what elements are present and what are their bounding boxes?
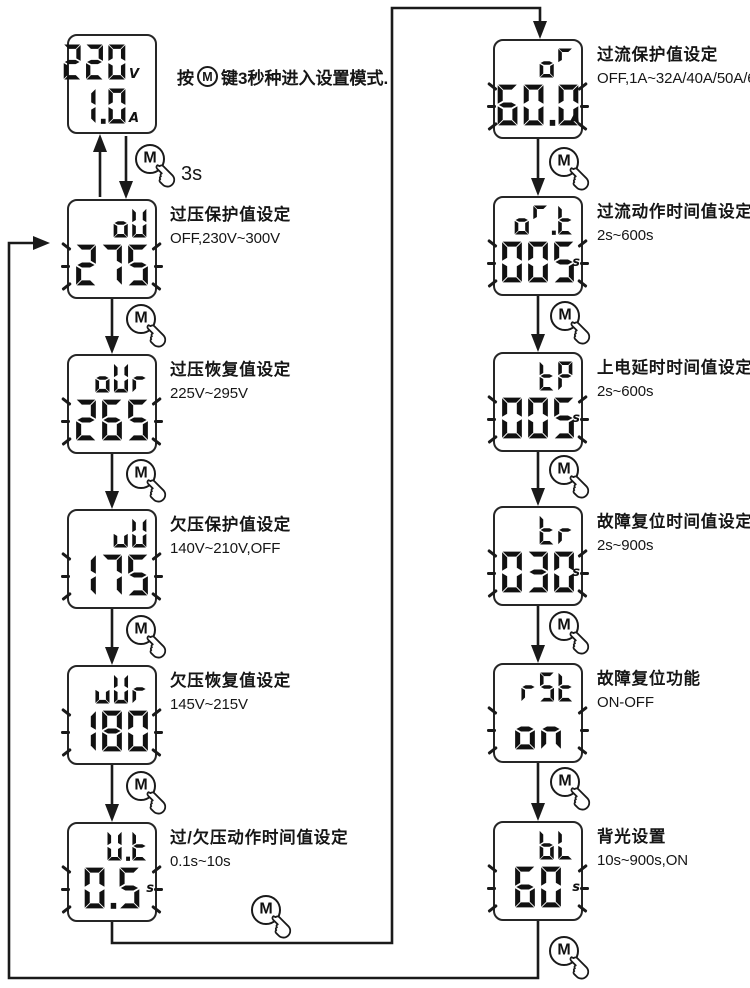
setting-title: 欠压恢复值设定 [170,667,291,691]
blink-marks-right [151,711,163,757]
blink-ray [61,708,71,717]
blink-ray [151,865,161,874]
seg [65,60,80,64]
m-button: M [550,301,580,331]
m-button: M [135,144,165,174]
hand-shape [272,916,290,937]
blink-ray [487,239,497,248]
seg [124,364,128,377]
blink-ray [577,395,587,404]
blink-marks-right [577,552,589,598]
seg [143,209,147,222]
hand-shape [570,632,588,653]
blink-ray [154,265,163,268]
setting-range: 225V~295V [170,385,291,402]
arrowhead [105,804,119,822]
seg [499,102,516,107]
setting-range: 2s~600s [597,227,750,244]
lcd-screen-tr: s [493,506,583,606]
blink-ray [61,437,71,446]
seg [559,528,571,532]
setting-range: 2s~900s [597,537,750,554]
hand-shape [156,165,174,186]
arrowhead [531,803,545,821]
seg [540,362,544,375]
blink-ray [61,592,71,601]
arrowhead [105,647,119,665]
seg [541,843,553,847]
seven-seg-text [514,205,573,235]
arrowhead [93,134,107,152]
seg [555,259,572,264]
seg [522,685,534,689]
setting-annotation: 故障复位时间值设定2s~900s [597,508,750,554]
setting-annotation: 故障复位功能ON-OFF [597,665,701,711]
blink-marks-right [151,555,163,601]
hand-shape [571,788,589,809]
hand-shape [571,322,589,343]
seg [91,107,95,123]
seg [91,732,96,750]
seg [558,831,562,844]
blink-ray [151,282,161,291]
seven-seg-text [76,244,149,286]
seg [108,832,112,845]
hand-click-icon [566,474,591,499]
blink-ray [580,418,589,421]
blink-marks-right [577,242,589,288]
seg [124,675,128,688]
screen-label [539,361,573,391]
blink-ray [580,729,589,732]
seg [555,415,572,420]
blink-ray [487,395,497,404]
seg [516,726,533,731]
seg-dot [126,857,130,861]
blink-ray [151,242,161,251]
hand-click-icon [567,320,592,345]
blink-ray [577,549,587,558]
seg-dot [111,903,116,909]
hand-click-icon [268,914,293,939]
screen-value [497,84,579,126]
seg-dot [552,231,556,235]
seg [542,726,559,731]
voltage-reading: V [63,44,139,80]
setting-range: 140V~210V,OFF [170,540,291,557]
hand-click-icon [152,163,177,188]
seven-seg-text [521,672,573,702]
lcd-screen-bL: s [493,821,583,921]
setting-range: 2s~600s [597,383,750,400]
seven-seg-text [76,710,149,752]
setting-annotation: 过压保护值设定OFF,230V~300V [170,201,291,247]
unit-amp: A [129,112,139,125]
screen-value [76,244,149,286]
blink-marks-right [577,398,589,444]
setting-title: 背光设置 [597,823,688,847]
blink-ray [487,572,496,575]
blink-ray [154,888,163,891]
blink-ray [580,572,589,575]
blink-ray [61,265,70,268]
m-button: M [550,767,580,797]
arrowhead [105,491,119,509]
blink-ray [487,864,497,873]
hand-shape [570,168,588,189]
screen-label [514,205,573,235]
seven-seg-text [107,831,147,861]
hand-click-icon [143,323,168,348]
current-reading: A [78,88,139,124]
screen-label [95,363,147,393]
blink-ray [577,435,587,444]
setting-title: 过流动作时间值设定 [597,198,750,222]
seg [529,569,546,574]
screen-label [107,831,147,861]
setting-annotation: 欠压恢复值设定145V~215V [170,667,291,713]
blink-ray [61,888,70,891]
setting-range: ON-OFF [597,694,701,711]
seven-seg-text [539,515,573,545]
seg [559,374,571,378]
device-settings-flow-diagram: 按 M 键3秒种进入设置模式. 3s VAsAssss过压保护值设定OFF,23… [0,0,750,988]
blink-ray [580,105,589,108]
lcd-screen-oUr [67,354,157,454]
arrowhead [531,645,545,663]
seg [114,675,118,688]
seg [143,519,147,532]
blink-ray [154,575,163,578]
seg [558,206,562,219]
blink-ray [61,242,71,251]
setting-title: 故障复位时间值设定 [597,508,750,532]
seg [133,376,145,380]
seg [121,885,138,890]
blink-ray [61,905,71,914]
arrowhead [533,21,547,39]
seg [77,262,94,267]
seven-seg-text [76,399,149,441]
m-button: M [549,611,579,641]
hand-click-icon [143,790,168,815]
screen-label [539,830,573,860]
seg [87,60,102,64]
hold-time-label: 3s [181,163,202,186]
blink-ray [487,746,497,755]
setting-range: OFF,230V~300V [170,230,291,247]
setting-title: 故障复位功能 [597,665,701,689]
blink-marks-right [577,85,589,131]
seg [516,218,528,222]
blink-ray [580,887,589,890]
seven-seg-text [502,241,575,283]
seven-seg-text [76,554,149,596]
blink-ray [61,575,70,578]
blink-ray [61,282,71,291]
screen-label [113,208,147,238]
blink-ray [487,887,496,890]
blink-ray [487,706,497,715]
seg [91,89,95,105]
seg [133,690,137,703]
hand-click-icon [566,630,591,655]
m-button: M [549,455,579,485]
blink-ray [577,589,587,598]
seven-seg-text [95,363,147,393]
blink-marks-right [577,709,589,755]
setting-annotation: 过流保护值设定OFF,1A~32A/40A/50A/63A [597,41,750,87]
setting-title: 过/欠压动作时间值设定 [170,824,348,848]
screen-value [515,708,562,750]
seg [129,262,146,267]
lcd-screen-tP: s [493,352,583,452]
m-key-inline-label: M [202,70,212,84]
blink-marks-left [487,552,499,598]
m-button: M [126,771,156,801]
setting-range: OFF,1A~32A/40A/50A/63A [597,70,750,87]
blink-ray [151,592,161,601]
seg [521,688,525,701]
connector-line [112,8,540,943]
screen-label [113,518,147,548]
unit-volt: V [129,68,139,81]
setting-annotation: 欠压保护值设定140V~210V,OFF [170,511,291,557]
blink-marks-left [61,711,73,757]
seg [118,832,122,845]
seg [103,417,120,422]
blink-ray [577,746,587,755]
seven-seg-text [539,830,573,860]
setting-annotation: 过压恢复值设定225V~295V [170,356,291,402]
blink-ray [151,397,161,406]
seg [114,364,118,377]
seven-seg-text [515,866,562,908]
seg [558,531,562,544]
seg [541,61,553,65]
seven-seg-text [84,867,140,909]
seg [132,832,136,845]
blink-ray [61,552,71,561]
blink-ray [487,549,497,558]
m-button: M [126,304,156,334]
blink-marks-left [61,868,73,914]
screen-value [502,397,575,439]
seg [77,417,94,422]
screen-value [76,710,149,752]
setting-title: 过压恢复值设定 [170,356,291,380]
seven-seg-text [502,397,575,439]
intro-text-suffix: 键3秒种进入设置模式. [221,64,388,89]
seven-seg-text [113,518,147,548]
seg [129,417,146,422]
lcd-screen-Ut: s [67,822,157,922]
blink-ray [61,420,70,423]
blink-ray [61,748,71,757]
blink-marks-left [487,709,499,755]
screen-value [76,399,149,441]
seg [129,572,146,577]
blink-marks-right [151,868,163,914]
blink-ray [577,904,587,913]
setting-annotation: 过流动作时间值设定2s~600s [597,198,750,244]
blink-ray [151,708,161,717]
arrowhead [531,178,545,196]
seg [559,673,563,686]
seg [541,528,553,532]
seg [559,685,571,689]
seg [91,576,96,594]
seg [559,218,571,222]
blink-ray [487,105,496,108]
intro-text-prefix: 按 [177,64,194,89]
blink-ray [154,420,163,423]
setting-range: 145V~215V [170,696,291,713]
seg [516,884,533,889]
seg [556,730,561,748]
seg [117,266,122,284]
setting-annotation: 背光设置10s~900s,ON [597,823,688,869]
hand-shape [570,476,588,497]
screen-label [539,48,573,78]
hand-click-icon [143,478,168,503]
arrowhead [33,236,50,250]
setting-title: 过流保护值设定 [597,41,750,65]
seven-seg-text [539,361,573,391]
seg [541,730,546,748]
setting-annotation: 过/欠压动作时间值设定0.1s~10s [170,824,348,870]
screen-value [84,867,140,909]
lcd-screen-oC: A [493,39,583,139]
intro-note: 按 M 键3秒种进入设置模式. [177,64,388,89]
blink-ray [487,262,496,265]
hand-shape [147,792,165,813]
screen-label [95,674,147,704]
blink-ray [487,904,497,913]
seg-dot [101,119,106,124]
blink-ray [577,239,587,248]
blink-marks-right [151,400,163,446]
lcd-screen-uU [67,509,157,609]
arrowhead [531,334,545,352]
seven-seg-text [497,84,579,126]
blink-marks-left [61,245,73,291]
seven-seg-text [539,48,573,78]
setting-title: 过压保护值设定 [170,201,291,225]
screen-value [76,554,149,596]
m-key-inline-icon: M [197,66,218,87]
lcd-screen-rSt [493,663,583,763]
blink-marks-left [487,867,499,913]
setting-title: 上电延时时间值设定 [597,354,750,378]
setting-range: 0.1s~10s [170,853,348,870]
screen-value [515,866,562,908]
seven-seg-text [515,708,562,750]
seven-seg-text [95,674,147,704]
blink-ray [151,748,161,757]
blink-ray [577,279,587,288]
hand-click-icon [566,955,591,980]
setting-range: 10s~900s,ON [597,852,688,869]
seg [91,555,96,573]
seg [541,685,553,689]
seg [132,519,136,532]
seven-seg-text [502,551,575,593]
m-button: M [549,936,579,966]
arrowhead [531,488,545,506]
blink-marks-left [61,555,73,601]
seg [133,687,145,691]
hand-shape [147,325,165,346]
hand-shape [147,480,165,501]
seg [117,576,122,594]
seven-seg-text [113,208,147,238]
lcd-screen-home: VA [67,34,157,134]
blink-ray [487,279,497,288]
seg [133,844,145,848]
blink-ray [577,706,587,715]
seg [133,379,137,392]
blink-marks-right [151,245,163,291]
seg [540,831,544,844]
seg [103,728,120,733]
blink-ray [577,122,587,131]
screen-value [502,551,575,593]
seg [96,376,108,380]
m-button: M [251,895,281,925]
screen-label [521,672,573,702]
screen-value [502,241,575,283]
seg [558,377,562,390]
lcd-screen-uUr [67,665,157,765]
seg [540,516,544,529]
seg [115,221,127,225]
lcd-screen-oCt: s [493,196,583,296]
hand-shape [570,957,588,978]
blink-ray [154,731,163,734]
arrowhead [105,336,119,354]
blink-ray [580,262,589,265]
setting-title: 欠压保护值设定 [170,511,291,535]
blink-ray [61,865,71,874]
blink-ray [577,864,587,873]
seg [91,711,96,729]
blink-ray [151,437,161,446]
blink-ray [487,729,496,732]
blink-ray [61,731,70,734]
seven-seg-text [78,88,126,124]
blink-ray [487,435,497,444]
blink-marks-left [487,398,499,444]
blink-ray [487,418,496,421]
m-button: M [126,459,156,489]
blink-marks-left [487,85,499,131]
blink-ray [487,122,497,131]
screen-label [539,515,573,545]
blink-ray [487,589,497,598]
seven-seg-text [63,44,126,80]
m-button: M [549,147,579,177]
blink-ray [61,397,71,406]
blink-marks-left [487,242,499,288]
hand-click-icon [567,786,592,811]
blink-ray [151,905,161,914]
seg [132,209,136,222]
blink-ray [151,552,161,561]
seg [541,374,553,378]
blink-marks-right [577,867,589,913]
hand-shape [147,636,165,657]
